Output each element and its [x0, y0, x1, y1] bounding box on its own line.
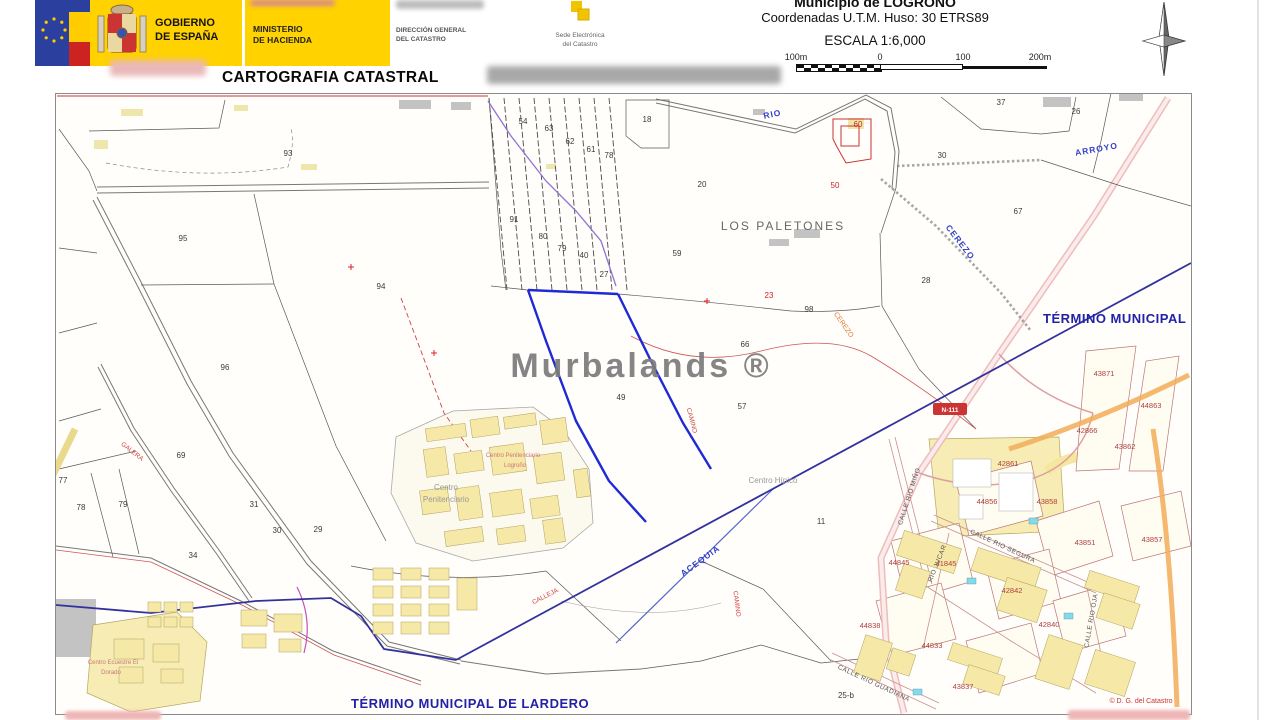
map-label: 98 — [805, 305, 814, 314]
map-line-p — [881, 188, 896, 233]
terrain-patch — [301, 164, 317, 170]
map-line-road — [97, 182, 489, 187]
map-label: ACEQUIA — [679, 543, 722, 578]
terrain-patch — [1043, 97, 1071, 107]
map-label: Murbalands ® — [510, 347, 771, 385]
terrain-patch — [451, 102, 471, 110]
map-label: 27 — [600, 270, 609, 279]
redacted-title-left — [110, 60, 206, 76]
map-label: 34 — [189, 551, 198, 560]
scale-label-1: 0 — [877, 52, 882, 62]
building — [164, 617, 177, 627]
map-label: 50 — [831, 181, 840, 190]
map-line-light — [561, 601, 721, 613]
map-label: 43871 — [1094, 369, 1115, 378]
map-label: 79 — [119, 500, 128, 509]
map-label: 54 — [519, 117, 528, 126]
building — [401, 568, 421, 580]
ministerio-label: MINISTERIO DE HACIENDA — [253, 24, 312, 46]
map-label: TÉRMINO MUNICIPAL DE LARDERO — [351, 696, 589, 711]
map-label: 93 — [284, 149, 293, 158]
map-line-or — [1153, 429, 1177, 707]
map-label: 96 — [221, 363, 230, 372]
map-line-strip — [609, 98, 627, 290]
direccion-line2: DEL CATASTRO — [396, 35, 466, 44]
terrain-patch — [1119, 93, 1143, 101]
building — [373, 586, 393, 598]
map-label: 63 — [545, 124, 554, 133]
sede-line1: Sede Electrónica — [535, 31, 625, 40]
terrain-patch — [234, 105, 248, 111]
building — [423, 447, 449, 478]
building — [429, 586, 449, 598]
map-label: LOS PALETONES — [721, 219, 845, 233]
building — [242, 634, 266, 648]
map-line-p — [274, 284, 386, 541]
map-line-chan — [881, 179, 1031, 331]
building — [530, 495, 561, 519]
building — [470, 416, 500, 438]
map-label: 42866 — [1077, 426, 1098, 435]
building — [180, 617, 193, 627]
map-label: 40 — [580, 251, 589, 260]
map-label: 69 — [177, 451, 186, 460]
map-line-p — [1093, 93, 1111, 173]
gobierno-line2: DE ESPAÑA — [155, 30, 218, 44]
map-line-strip — [564, 98, 582, 290]
building-court — [953, 459, 991, 487]
map-label: 42842 — [1002, 586, 1023, 595]
building — [114, 639, 144, 659]
map-line-p — [59, 451, 136, 469]
map-label: Centro Ecuestre El — [88, 660, 138, 666]
scale-bar: 100m 0 100 200m — [780, 52, 1060, 76]
map-label: 42840 — [1039, 620, 1060, 629]
map-label: 28 — [922, 276, 931, 285]
map-label: Logroño — [504, 463, 527, 469]
map-label: 61 — [587, 145, 596, 154]
compass-rose-icon — [1138, 0, 1190, 80]
map-label: 43857 — [1142, 535, 1163, 544]
map-line-yb — [55, 429, 75, 479]
map-label: 31 — [250, 500, 259, 509]
map-line-p — [701, 561, 831, 661]
map-label: 94 — [377, 282, 386, 291]
page-title: CARTOGRAFIA CATASTRAL — [222, 69, 439, 87]
redacted-bottom-left — [65, 711, 161, 720]
building — [489, 443, 527, 475]
building — [401, 622, 421, 634]
map-label: 37 — [997, 98, 1006, 107]
map-line-p — [59, 248, 97, 253]
map-line-ub — [1129, 356, 1179, 471]
map-label: 43862 — [1115, 442, 1136, 451]
map-label: 57 — [738, 402, 747, 411]
red-cross-marker — [431, 350, 437, 356]
map-label: 80 — [539, 232, 548, 241]
building — [180, 602, 193, 612]
building — [153, 644, 179, 662]
terrain-patch — [546, 164, 556, 169]
map-label: 91 — [510, 215, 519, 224]
map-label: 44856 — [977, 497, 998, 506]
map-line-p — [59, 129, 97, 191]
building — [457, 578, 477, 610]
pool — [1029, 518, 1038, 524]
pool — [967, 578, 976, 584]
building — [489, 489, 524, 517]
building — [539, 417, 568, 444]
map-line-p — [254, 194, 274, 284]
building — [401, 604, 421, 616]
redacted-bottom-right — [1068, 710, 1190, 720]
map-label: 95 — [179, 234, 188, 243]
map-label: 49 — [617, 393, 626, 402]
map-label: 77 — [59, 476, 68, 485]
map-label: 62 — [566, 137, 575, 146]
map-label: 59 — [673, 249, 682, 258]
sede-label: Sede Electrónica del Catastro — [535, 31, 625, 49]
map-label: 23 — [765, 291, 774, 300]
map-line-p — [119, 469, 139, 554]
map-label: 44833 — [922, 641, 943, 650]
map-line-rl2p — [999, 354, 1093, 413]
road-badge-label: N-111 — [942, 407, 959, 414]
map-label: 78 — [605, 151, 614, 160]
map-label: 43858 — [1037, 497, 1058, 506]
page-edge-line — [1257, 0, 1259, 720]
sede-icon — [567, 0, 593, 24]
map-line-p — [941, 97, 1041, 134]
map-label: 18 — [643, 115, 652, 124]
map-label: 20 — [698, 180, 707, 189]
map-line-road — [93, 200, 137, 285]
map-line-strip — [519, 98, 537, 290]
pool — [1064, 613, 1073, 619]
building — [429, 622, 449, 634]
map-label: Penitenciario — [423, 495, 470, 504]
map-label: CALLEJA — [531, 587, 560, 606]
building — [373, 622, 393, 634]
map-line-road — [101, 364, 252, 598]
building — [241, 610, 267, 626]
map-label: 44845 — [889, 558, 910, 567]
map-line-p — [491, 286, 528, 290]
terrain-patch — [94, 140, 108, 149]
map-label: 60 — [854, 120, 863, 129]
scale-bar-checker2 — [796, 68, 882, 72]
map-line-strip — [504, 98, 522, 290]
map-label: Centro Penitenciario — [486, 453, 541, 459]
pool — [913, 689, 922, 695]
sede-line2: del Catastro — [535, 40, 625, 49]
road-badge: N-111 — [933, 403, 967, 415]
terrain-patch — [399, 100, 431, 109]
map-line-p — [626, 100, 669, 148]
map-line-p — [141, 284, 274, 285]
scale-label-0: 100m — [785, 52, 808, 62]
map-label: 79 — [558, 244, 567, 253]
building-court — [999, 473, 1033, 511]
map-line-ub — [1076, 346, 1136, 471]
map-label: 43837 — [953, 682, 974, 691]
map-line-p — [59, 323, 97, 333]
building — [274, 614, 302, 632]
ministerio-line1: MINISTERIO — [253, 24, 312, 35]
map-label: 43851 — [1075, 538, 1096, 547]
map-label: Centro — [434, 483, 459, 492]
scale-text: ESCALA 1:6,000 — [745, 33, 1005, 48]
map-label: 44838 — [860, 621, 881, 630]
building — [429, 568, 449, 580]
document-header: GOBIERNO DE ESPAÑA MINISTERIO DE HACIEND… — [0, 0, 1280, 92]
sede-electronica-block: Sede Electrónica del Catastro — [535, 0, 625, 49]
map-line-p — [59, 409, 101, 421]
map-line-chan — [897, 160, 1041, 166]
redacted-strip-top-gray — [396, 0, 484, 9]
terrain-patch — [769, 239, 789, 246]
scale-bar-middle — [880, 64, 963, 70]
building — [401, 586, 421, 598]
building — [429, 604, 449, 616]
red-cross-marker — [704, 298, 710, 304]
redacted-title-right — [487, 66, 781, 84]
map-line-pd — [106, 129, 292, 173]
map-label: 67 — [1014, 207, 1023, 216]
building — [279, 639, 301, 652]
direccion-line1: DIRECCIÓN GENERAL — [396, 26, 466, 35]
municipio-title: Municipio de LOGROÑO — [770, 0, 980, 10]
map-label: 29 — [314, 525, 323, 534]
map-label: ARROYO — [1074, 140, 1118, 157]
map-label: Dorado — [101, 670, 121, 676]
building — [542, 518, 565, 545]
map-label: 25-b — [838, 691, 855, 700]
banner-divider — [242, 0, 245, 66]
map-label: CEREZO — [832, 311, 855, 339]
scale-label-3: 200m — [1029, 52, 1052, 62]
map-line-p — [91, 473, 113, 557]
map-labels-layer: 9395949654636261781891807940275920372630… — [59, 98, 1187, 711]
map-label: 11 — [817, 517, 826, 526]
building — [161, 669, 183, 683]
map-label: 44863 — [1141, 401, 1162, 410]
map-label: 78 — [77, 503, 86, 512]
terrain-patch — [121, 109, 143, 116]
map-label: RIO — [762, 107, 782, 121]
map-line-p — [89, 100, 225, 131]
markers-layer — [348, 264, 710, 356]
cadastral-map: 9395949654636261781891807940275920372630… — [55, 93, 1192, 715]
building — [1084, 649, 1135, 696]
map-label: CAMINO — [731, 590, 741, 617]
building — [373, 568, 393, 580]
building — [164, 602, 177, 612]
map-label: Centro Hípico — [749, 476, 798, 485]
building — [119, 667, 143, 683]
map-label: 26 — [1072, 107, 1081, 116]
coat-of-arms-icon — [93, 2, 151, 64]
map-label: 30 — [273, 526, 282, 535]
map-line-ub — [1121, 491, 1191, 561]
map-line-p — [880, 233, 919, 369]
redacted-strip-top-pink — [250, 0, 335, 6]
map-line-road — [461, 661, 641, 674]
map-label: 42861 — [998, 459, 1019, 468]
map-label: 30 — [938, 151, 947, 160]
building — [148, 617, 161, 627]
building — [373, 604, 393, 616]
spain-eu-flag-icon — [35, 0, 90, 66]
map-label: GALERA — [119, 441, 145, 463]
map-label: CEREZO — [944, 223, 977, 262]
gobierno-line1: GOBIERNO — [155, 16, 218, 30]
gobierno-banner: GOBIERNO DE ESPAÑA MINISTERIO DE HACIEND… — [35, 0, 390, 66]
map-line-road — [97, 197, 141, 282]
red-cross-marker — [348, 264, 354, 270]
gobierno-label: GOBIERNO DE ESPAÑA — [155, 16, 218, 44]
map-line-strip — [579, 98, 597, 290]
direccion-general-label: DIRECCIÓN GENERAL DEL CATASTRO — [396, 26, 466, 44]
map-line-strip — [594, 98, 612, 290]
building — [148, 602, 161, 612]
utm-coordinates: Coordenadas U.T.M. Huso: 30 ETRS89 — [745, 10, 1005, 25]
scale-bar-solid — [963, 66, 1047, 69]
map-line-road — [97, 188, 489, 193]
ministerio-line2: DE HACIENDA — [253, 35, 312, 46]
map-line-blue — [528, 290, 618, 294]
parcel-lines-layer — [55, 93, 1191, 713]
building — [454, 450, 485, 474]
map-label: TÉRMINO MUNICIPAL — [1043, 311, 1186, 326]
scale-label-2: 100 — [955, 52, 970, 62]
map-line-p — [618, 294, 880, 311]
map-label: © D. G. del Catastro — [1109, 697, 1172, 705]
